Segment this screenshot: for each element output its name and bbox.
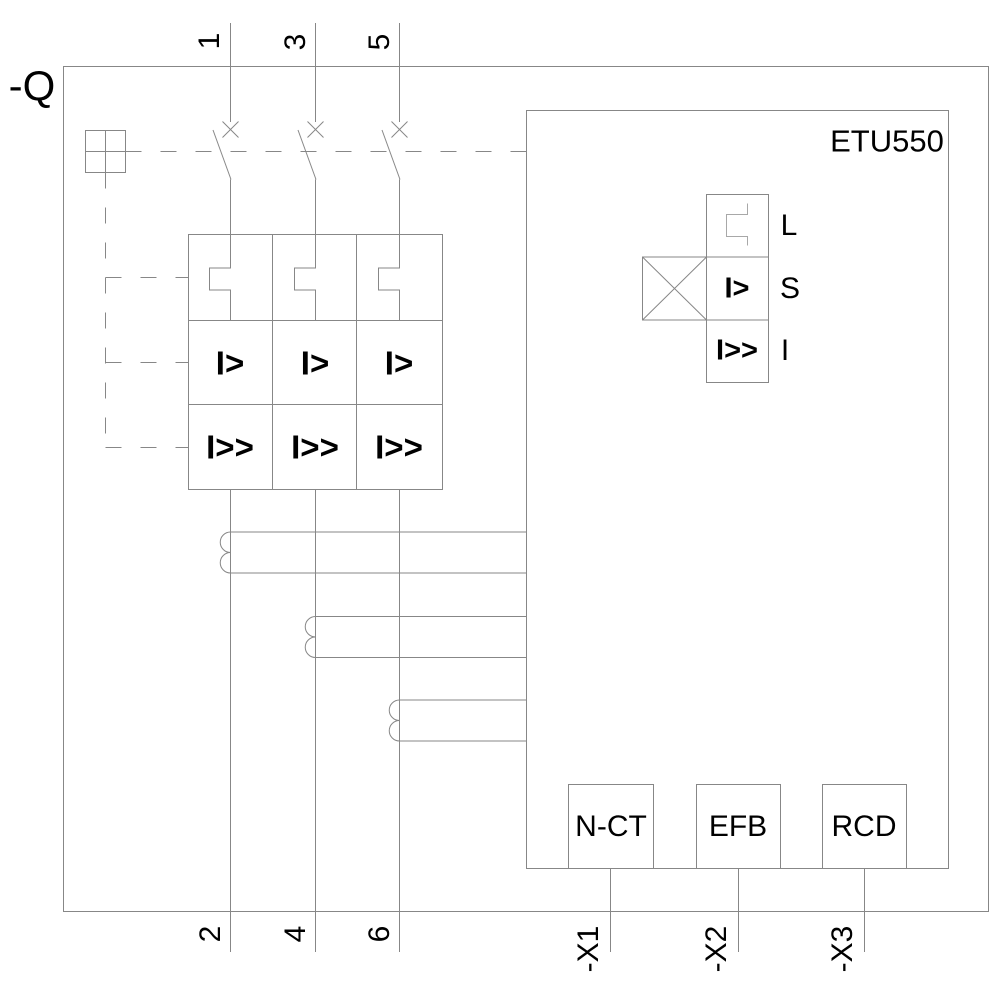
ct-2-winding-icon <box>305 617 315 658</box>
ct-3-winding-icon <box>389 700 399 741</box>
phase-2-conductor <box>295 23 324 952</box>
phase-2-contact-cross-icon <box>308 122 324 138</box>
etu-function-label-s: S <box>780 274 800 304</box>
terminal-label-5: 5 <box>365 34 395 51</box>
phase-3-conductor <box>379 23 408 952</box>
current-transformer-3 <box>389 700 526 741</box>
module-label-nct: N-CT <box>575 812 647 842</box>
grid-overcurrent-symbol-2: I> <box>301 347 329 380</box>
phase-1-switch-blade <box>213 130 231 180</box>
etu-function-label-i: I <box>781 336 789 366</box>
grid-shortcircuit-symbol-3: I>> <box>375 431 423 464</box>
etu-name-label: ETU550 <box>830 126 944 157</box>
grid-shortcircuit-symbol-1: I>> <box>206 431 254 464</box>
current-transformer-2 <box>305 617 526 658</box>
module-label-efb: EFB <box>709 812 767 842</box>
phase-1-long-time-release-icon <box>210 235 231 321</box>
ct-1-winding-icon <box>220 532 230 573</box>
phase-3-contact-cross-icon <box>392 122 408 138</box>
position-indicator <box>86 131 126 173</box>
grid-overcurrent-symbol-1: I> <box>216 347 244 380</box>
module-label-rcd: RCD <box>832 812 897 842</box>
aux-terminal-label-x3: -X3 <box>828 926 858 973</box>
terminal-label-4: 4 <box>281 926 311 943</box>
current-transformer-1 <box>220 532 526 573</box>
etu-function-label-l: L <box>781 211 798 241</box>
device-label: -Q <box>9 65 56 107</box>
terminal-label-3: 3 <box>281 34 311 51</box>
etu-s-symbol: I> <box>725 275 750 304</box>
aux-terminal-label-x2: -X2 <box>702 926 732 973</box>
phase-1-contact-cross-icon <box>223 122 239 138</box>
phase-3-long-time-release-icon <box>379 235 400 321</box>
aux-terminal-label-x1: -X1 <box>574 926 604 973</box>
etu-box <box>527 111 949 869</box>
grid-overcurrent-symbol-3: I> <box>385 347 413 380</box>
terminal-label-2: 2 <box>196 926 226 943</box>
etu-crossed-box-x-icon <box>643 257 707 320</box>
terminal-label-6: 6 <box>365 926 395 943</box>
etu-function-box-l <box>707 195 769 258</box>
phase-1-conductor <box>210 23 239 952</box>
grid-shortcircuit-symbol-2: I>> <box>291 431 339 464</box>
phase-2-long-time-release-icon <box>295 235 316 321</box>
schematic-canvas: -Q ETU550 1 3 5 2 4 6 -X1 -X2 -X3 I> I> … <box>0 0 1000 1000</box>
etu-long-time-curve-icon <box>727 204 748 246</box>
phase-2-switch-blade <box>298 130 316 180</box>
phase-3-switch-blade <box>382 130 400 180</box>
etu-i-symbol: I>> <box>716 337 758 366</box>
terminal-label-1: 1 <box>195 33 225 50</box>
